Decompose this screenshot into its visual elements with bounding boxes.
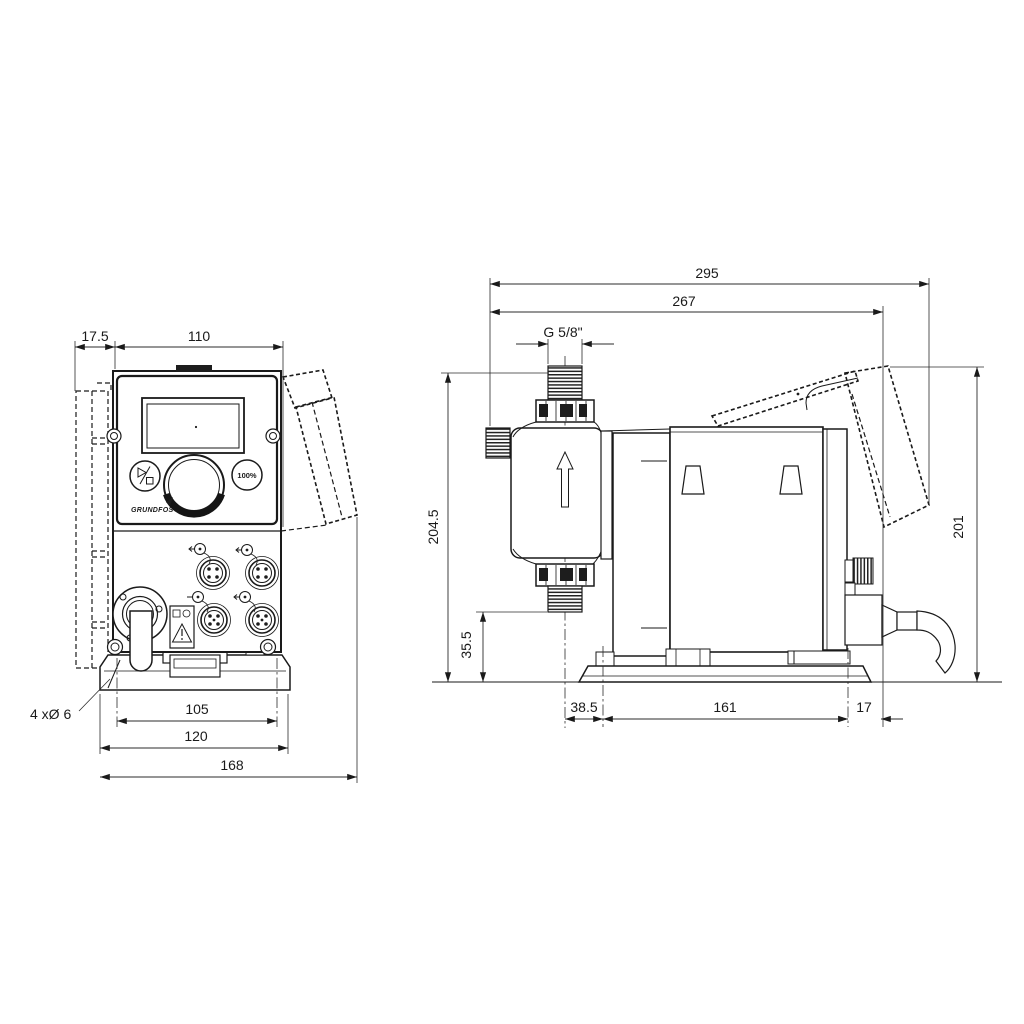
dim-overall-depth: 295 xyxy=(695,265,719,281)
dim-hole-spacing-d: 161 xyxy=(713,699,737,715)
outlet-thread-bottom xyxy=(548,586,582,612)
connector-block xyxy=(845,595,882,645)
screw xyxy=(108,640,123,655)
capacity-button-label: 100% xyxy=(237,471,257,480)
dim-overall-width: 168 xyxy=(220,757,244,773)
dim-overall-height: 204.5 xyxy=(425,509,441,544)
motor-housing-side xyxy=(603,427,847,665)
head-body xyxy=(511,428,603,558)
screw xyxy=(261,640,276,655)
gland-thread xyxy=(853,558,873,584)
dim-hole-spacing-h: 105 xyxy=(185,701,209,717)
dim-bracket-height: 201 xyxy=(950,515,966,539)
head-flange xyxy=(601,431,612,559)
adapter-section xyxy=(613,433,670,656)
dim-mounting-holes: 4 xØ 6 xyxy=(30,706,71,722)
dim-bracket-depth: 267 xyxy=(672,293,696,309)
dim-rear-offset: 17 xyxy=(856,699,872,715)
dim-connection-thread: G 5/8" xyxy=(543,324,582,340)
dim-outlet-height: 35.5 xyxy=(458,631,474,658)
housing-top-tab xyxy=(176,365,212,372)
dim-plate-width: 120 xyxy=(184,728,208,744)
dim-bracket-offset: 17.5 xyxy=(81,328,108,344)
display-dot xyxy=(195,426,197,428)
power-cable-front xyxy=(130,611,152,671)
screw xyxy=(266,429,280,443)
svg-text:GRUNDFOS: GRUNDFOS xyxy=(131,507,173,514)
dim-housing-width: 110 xyxy=(188,328,211,344)
vent-valve-knob xyxy=(486,428,510,458)
screw xyxy=(107,429,121,443)
inlet-thread-top xyxy=(548,366,582,400)
motor-body xyxy=(670,427,823,652)
dim-head-offset: 38.5 xyxy=(570,699,597,715)
technical-drawing-canvas: 100% GRUNDFOS xyxy=(0,0,1024,1024)
warning-label xyxy=(170,606,194,648)
